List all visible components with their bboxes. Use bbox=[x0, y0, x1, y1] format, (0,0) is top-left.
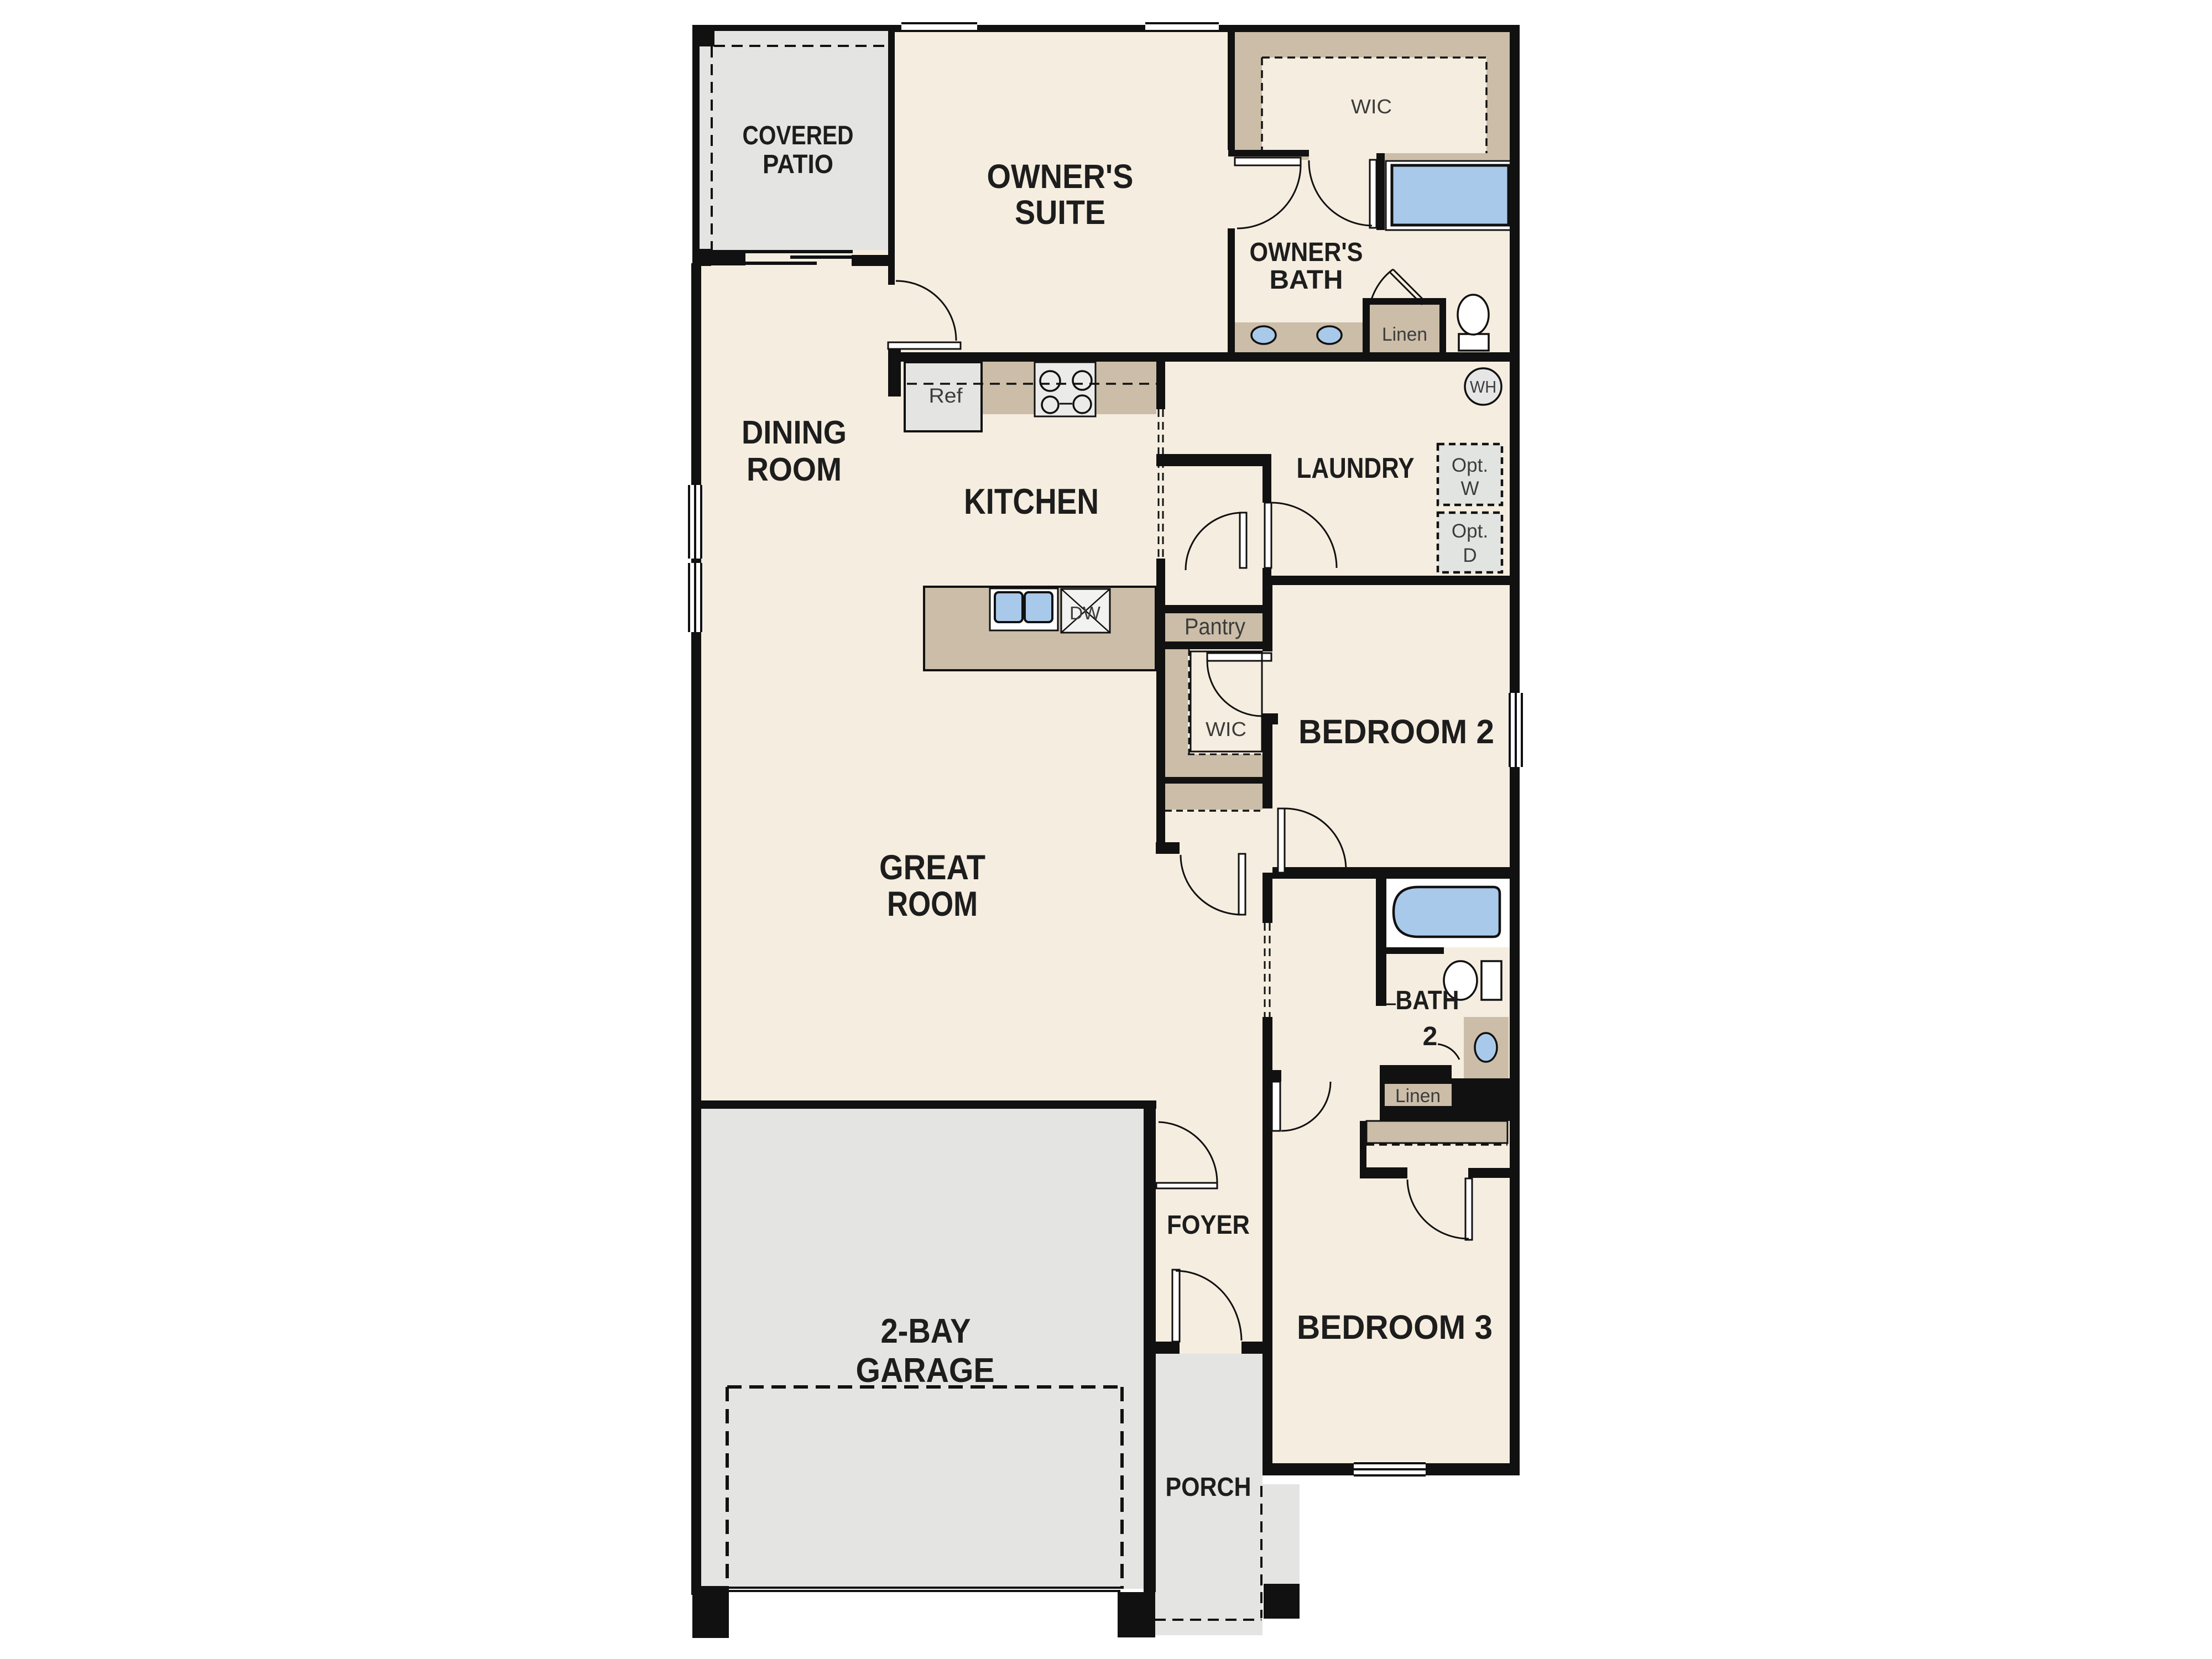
svg-text:FOYER: FOYER bbox=[1167, 1211, 1250, 1240]
svg-text:Pantry: Pantry bbox=[1185, 613, 1245, 639]
svg-text:2-BAY: 2-BAY bbox=[881, 1312, 971, 1350]
svg-text:Linen: Linen bbox=[1382, 324, 1427, 345]
svg-text:BATH: BATH bbox=[1270, 265, 1343, 295]
svg-text:2: 2 bbox=[1423, 1022, 1438, 1051]
svg-text:LAUNDRY: LAUNDRY bbox=[1297, 452, 1415, 484]
svg-text:WIC: WIC bbox=[1206, 718, 1246, 740]
svg-text:GARAGE: GARAGE bbox=[856, 1352, 995, 1390]
svg-text:ROOM: ROOM bbox=[887, 885, 978, 924]
svg-text:D: D bbox=[1463, 545, 1477, 566]
svg-text:OWNER'S: OWNER'S bbox=[987, 158, 1134, 195]
svg-text:COVERED: COVERED bbox=[743, 121, 854, 150]
svg-text:Opt.: Opt. bbox=[1452, 520, 1488, 542]
svg-text:W: W bbox=[1460, 478, 1479, 499]
svg-text:WIC: WIC bbox=[1351, 95, 1392, 118]
svg-text:GREAT: GREAT bbox=[879, 848, 985, 887]
svg-text:WH: WH bbox=[1470, 377, 1496, 397]
svg-text:Opt.: Opt. bbox=[1452, 455, 1488, 476]
svg-text:ROOM: ROOM bbox=[747, 451, 842, 488]
svg-text:PATIO: PATIO bbox=[763, 150, 833, 179]
svg-text:BATH: BATH bbox=[1396, 986, 1459, 1015]
svg-text:DINING: DINING bbox=[742, 414, 847, 451]
svg-text:PORCH: PORCH bbox=[1166, 1473, 1251, 1502]
svg-text:BEDROOM 3: BEDROOM 3 bbox=[1297, 1308, 1493, 1346]
svg-text:Ref: Ref bbox=[929, 384, 963, 407]
svg-text:DW: DW bbox=[1070, 603, 1101, 623]
svg-text:BEDROOM 2: BEDROOM 2 bbox=[1298, 713, 1494, 750]
svg-text:SUITE: SUITE bbox=[1015, 194, 1105, 231]
svg-text:OWNER'S: OWNER'S bbox=[1250, 238, 1363, 267]
svg-text:Linen: Linen bbox=[1395, 1086, 1441, 1107]
svg-text:KITCHEN: KITCHEN bbox=[964, 481, 1099, 521]
